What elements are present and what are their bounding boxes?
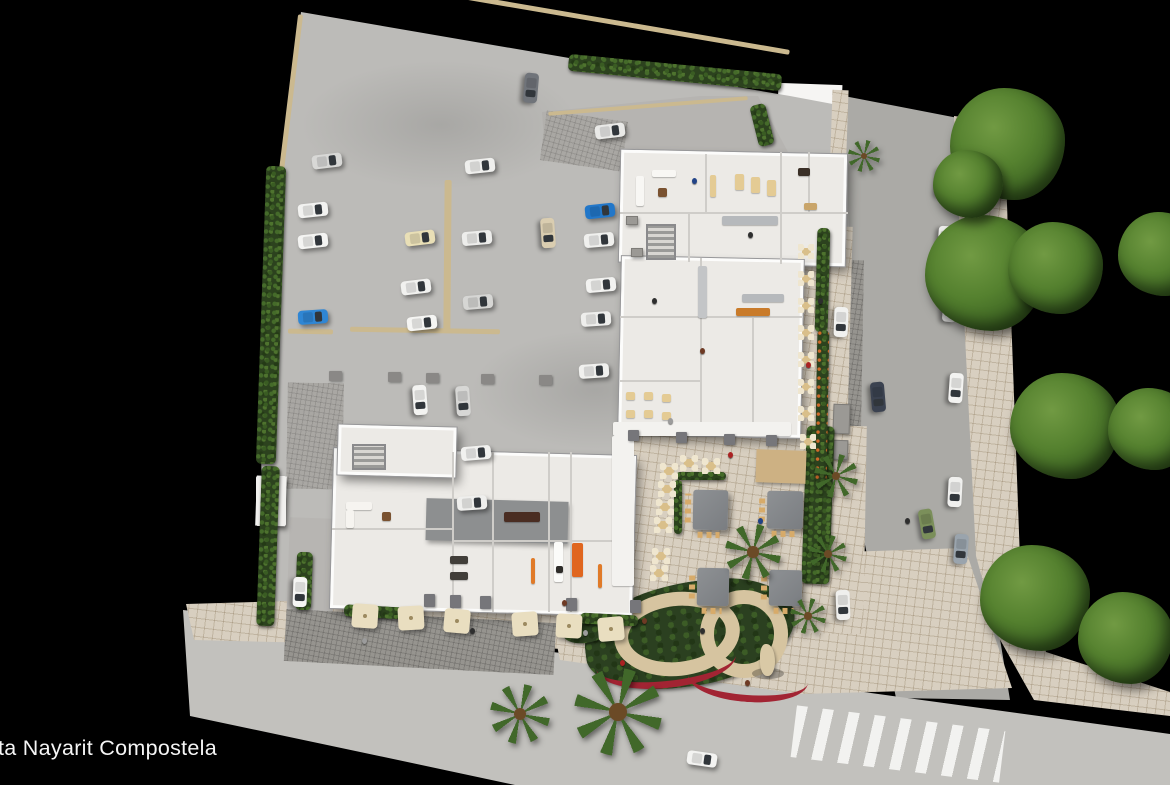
tree-canopy <box>0 0 1170 785</box>
tree-canopy <box>1008 222 1103 314</box>
tree-canopy <box>1010 373 1120 479</box>
site-plan-stage: ta Nayarit Compostela <box>0 0 1170 785</box>
palm-tree <box>814 454 858 498</box>
palm-tree <box>725 524 781 580</box>
tree-canopy <box>1118 212 1170 296</box>
palm-tree <box>809 535 847 573</box>
tree-canopy <box>933 150 1003 218</box>
palm-tree <box>848 140 880 172</box>
watermark-caption: ta Nayarit Compostela <box>0 736 217 761</box>
palm-tree <box>574 668 662 756</box>
tree-canopy <box>1078 592 1170 684</box>
tree-canopy <box>980 545 1090 651</box>
tree-canopy <box>1108 388 1170 470</box>
palm-tree <box>790 598 826 634</box>
palm-tree <box>490 684 550 744</box>
